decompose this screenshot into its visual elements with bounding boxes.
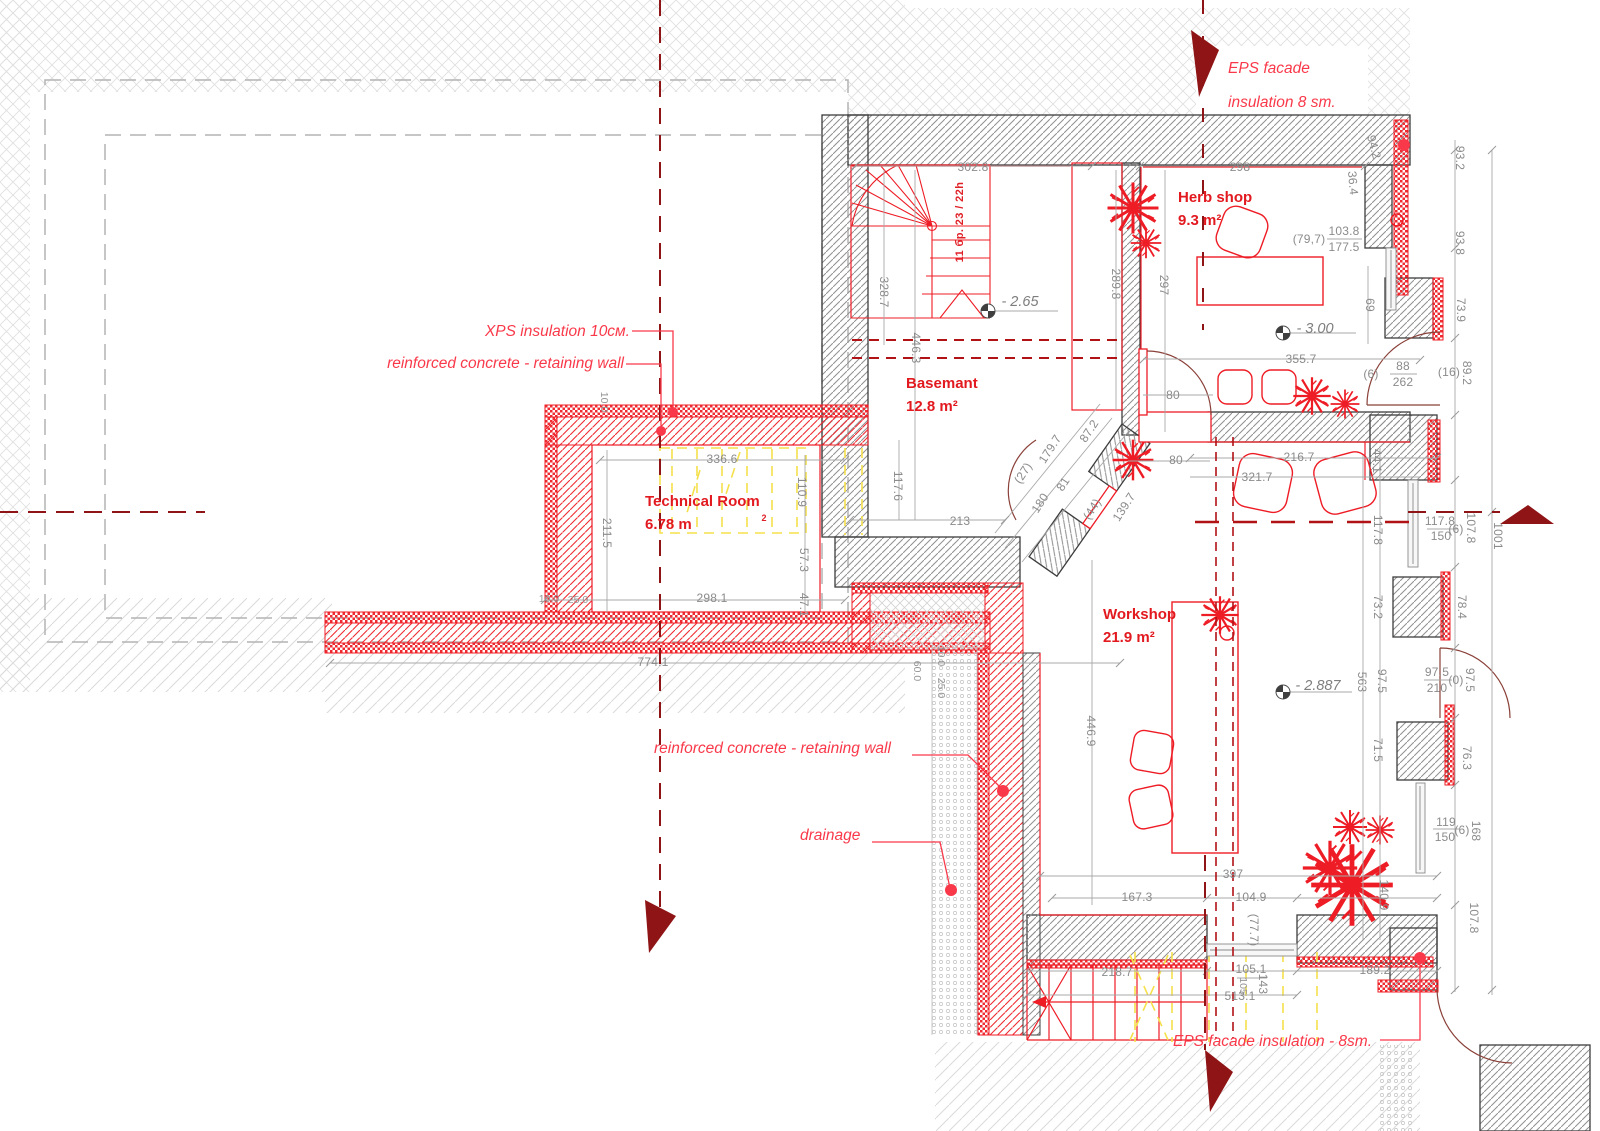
room-label-technical-room: Technical Room 6.78 m [645,490,760,537]
annotation-drainage: drainage [800,827,860,845]
diagonal-wall [1029,424,1150,576]
chair [1127,783,1174,830]
room-area: 9.3 m² [1178,209,1252,232]
arrow-right [1500,505,1554,524]
bottom-stair [1027,965,1207,1040]
stool [1218,370,1252,404]
room-area: 6.78 m [645,513,760,536]
stool [1262,370,1296,404]
plant-icon [1108,183,1159,234]
room-label-basement: Basemant 12.8 m² [906,372,978,419]
furniture [1127,203,1403,853]
annotation-eps-bottom: EPS facade insulation - 8sm. [1173,1033,1372,1051]
annotation-xps-insulation: XPS insulation 10см. [448,323,630,341]
herb-shop-table [1197,257,1323,305]
room-area: 12.8 m² [906,395,978,418]
stool [1231,451,1295,515]
spiral-stair [851,165,990,318]
annotation-retaining-wall-1: reinforced concrete - retaining wall [352,355,624,373]
annotation-eps-top-line2: insulation 8 sm. [1228,94,1336,112]
room-name: Workshop [1103,603,1176,626]
arrow-left [645,900,676,953]
room-name: Technical Room [645,490,760,513]
windows [1207,248,1425,956]
plan-graphics [0,0,1600,1131]
chair [1129,729,1175,775]
room-label-workshop: Workshop 21.9 m² [1103,603,1176,650]
plant-icon [1333,810,1367,844]
annotation-eps-top-line1: EPS facade [1228,60,1310,78]
room-name: Basemant [906,372,978,395]
floor-plan-canvas: 302.8328.7446.3117.6213289.829729894.236… [0,0,1600,1131]
plants [1108,183,1395,926]
plant-icon [1293,377,1330,414]
diagonal-door-leaf [1083,486,1117,529]
stool [1311,449,1380,518]
annotation-retaining-wall-2: reinforced concrete - retaining wall [654,740,891,758]
room-area: 21.9 m² [1103,626,1176,649]
room-name: Herb shop [1178,186,1252,209]
room-label-herb-shop: Herb shop 9.3 m² [1178,186,1252,233]
window-workshop-right-2 [1416,783,1425,873]
